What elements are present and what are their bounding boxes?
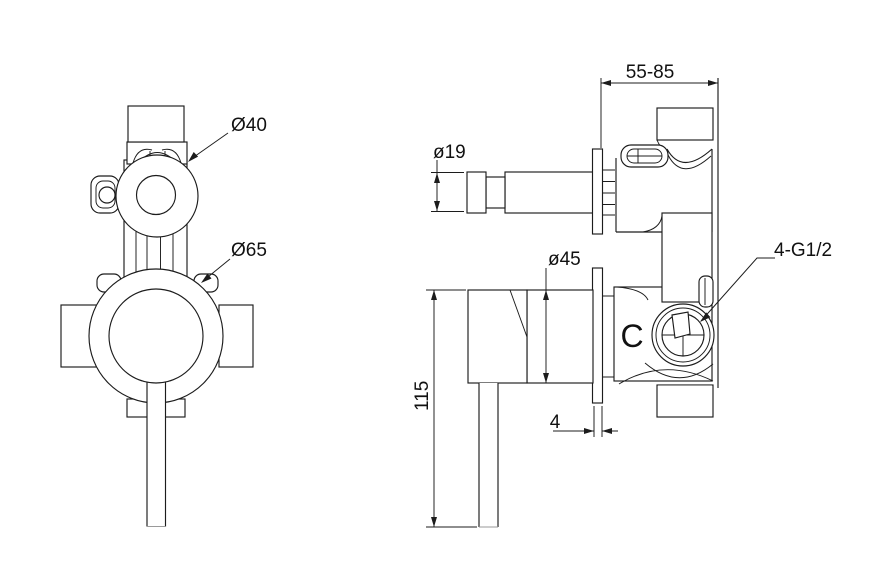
- ear-lug-hole: [99, 187, 115, 203]
- dim-label-d65: Ø65: [231, 240, 267, 261]
- cap-circle-inner: [137, 176, 176, 215]
- front-view-dimensions: Ø40 Ø65: [188, 115, 267, 283]
- body-cylinder-d45: [527, 290, 593, 383]
- side-view: C: [412, 62, 832, 527]
- top-outlet-pipe: [657, 108, 713, 140]
- spout-end-cap: [467, 172, 486, 213]
- mixer-valve-drawing: Ø40 Ø65: [0, 0, 878, 569]
- spout-collar: [486, 177, 505, 208]
- front-view-body: [61, 106, 253, 527]
- cold-marking: C: [620, 318, 643, 354]
- front-view: Ø40 Ø65: [61, 106, 267, 527]
- dim-label-height: 115: [412, 381, 433, 411]
- d40-arrowhead: [188, 152, 198, 162]
- dim-label-depth: 55-85: [626, 62, 675, 83]
- top-pipe: [128, 106, 184, 142]
- trim-circle-inner: [109, 289, 203, 383]
- dim-label-d19: ø19: [433, 142, 466, 163]
- thread-ridges: [603, 170, 615, 215]
- port-slot-flag: [672, 312, 690, 338]
- side-view-body: C: [467, 78, 718, 527]
- bottom-outlet-pipe: [657, 385, 713, 417]
- right-port: [219, 305, 253, 367]
- upper-wall-plate: [593, 149, 603, 234]
- spout-pipe: [505, 172, 593, 213]
- technical-drawing-page: Ø40 Ø65: [0, 0, 878, 569]
- dim-label-d40: Ø40: [231, 115, 267, 136]
- handle-knob: [468, 290, 527, 383]
- lower-wall-plate: [593, 268, 603, 403]
- dim-label-plate-thickness: 4: [550, 412, 561, 433]
- dim-label-ports: 4-G1/2: [774, 240, 832, 261]
- dim-label-d45: ø45: [548, 249, 581, 270]
